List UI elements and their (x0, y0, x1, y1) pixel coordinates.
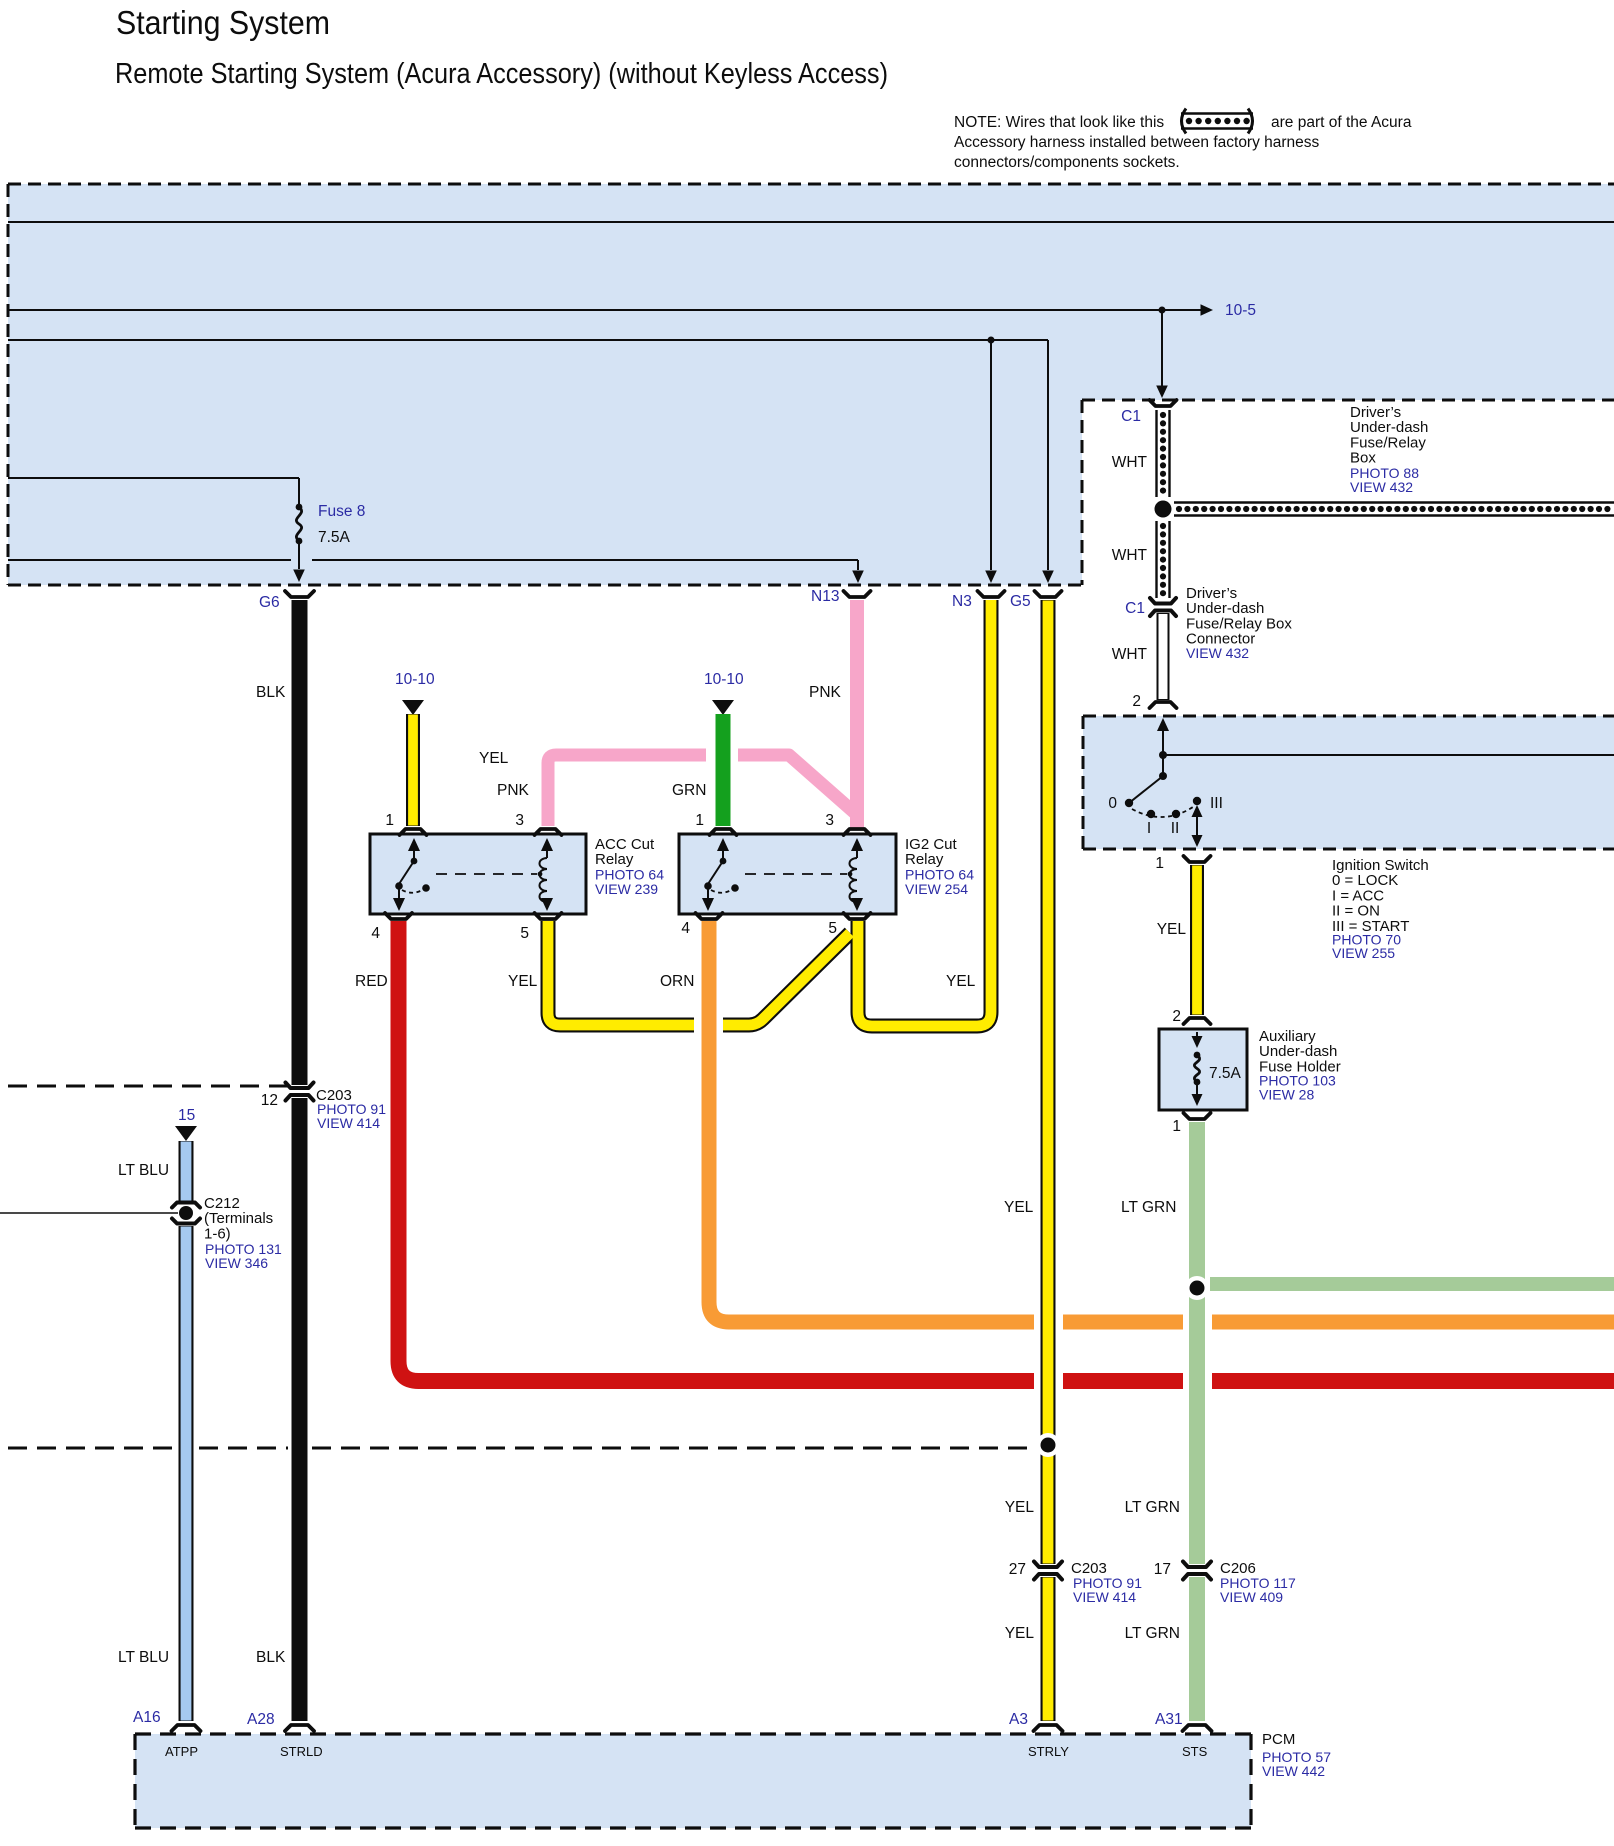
svg-text:VIEW 346: VIEW 346 (205, 1255, 268, 1271)
svg-text:1-6): 1-6) (204, 1225, 231, 1242)
svg-text:Fuse 8: Fuse 8 (318, 503, 365, 520)
svg-text:GRN: GRN (672, 782, 706, 799)
svg-text:YEL: YEL (946, 973, 976, 990)
svg-text:RED: RED (355, 973, 388, 990)
svg-text:Starting System: Starting System (116, 4, 330, 41)
svg-text:WHT: WHT (1112, 454, 1148, 471)
svg-text:C1: C1 (1121, 408, 1141, 425)
svg-text:A31: A31 (1155, 1711, 1183, 1728)
svg-text:VIEW 442: VIEW 442 (1262, 1763, 1325, 1779)
svg-text:VIEW 432: VIEW 432 (1350, 479, 1413, 495)
svg-text:7.5A: 7.5A (318, 529, 351, 546)
svg-text:VIEW 239: VIEW 239 (595, 881, 658, 897)
svg-text:5: 5 (520, 925, 529, 942)
svg-text:STS: STS (1182, 1744, 1208, 1759)
svg-text:12: 12 (261, 1092, 278, 1109)
svg-text:G5: G5 (1010, 593, 1031, 610)
svg-text:3: 3 (515, 812, 524, 829)
svg-text:NOTE: Wires that look like thi: NOTE: Wires that look like this (954, 114, 1164, 131)
svg-text:LT GRN: LT GRN (1125, 1625, 1180, 1642)
svg-text:Accessory harness installed be: Accessory harness installed between fact… (954, 134, 1320, 151)
svg-text:C1: C1 (1125, 600, 1145, 617)
svg-text:YEL: YEL (1004, 1199, 1034, 1216)
svg-text:1: 1 (1172, 1118, 1181, 1135)
svg-text:are part of the Acura: are part of the Acura (1271, 114, 1412, 131)
svg-text:10-10: 10-10 (704, 671, 744, 688)
svg-text:N13: N13 (811, 588, 839, 605)
svg-text:VIEW 255: VIEW 255 (1332, 945, 1395, 961)
svg-text:G6: G6 (259, 594, 280, 611)
svg-text:III: III (1210, 795, 1223, 812)
svg-text:ATPP: ATPP (165, 1744, 198, 1759)
svg-text:LT GRN: LT GRN (1121, 1199, 1176, 1216)
svg-text:STRLD: STRLD (280, 1744, 323, 1759)
svg-text:VIEW 414: VIEW 414 (1073, 1589, 1136, 1605)
svg-text:YEL: YEL (1005, 1625, 1035, 1642)
svg-text:VIEW 414: VIEW 414 (317, 1115, 380, 1131)
svg-text:YEL: YEL (1005, 1499, 1035, 1516)
svg-text:10-5: 10-5 (1225, 302, 1256, 319)
svg-text:BLK: BLK (256, 1649, 286, 1666)
svg-text:3: 3 (825, 812, 834, 829)
svg-text:A28: A28 (247, 1711, 275, 1728)
svg-text:WHT: WHT (1112, 646, 1148, 663)
svg-text:BLK: BLK (256, 684, 286, 701)
svg-text:7.5A: 7.5A (1209, 1065, 1242, 1082)
svg-text:A16: A16 (133, 1709, 161, 1726)
svg-text:LT BLU: LT BLU (118, 1162, 169, 1179)
svg-text:1: 1 (1155, 855, 1164, 872)
svg-text:2: 2 (1172, 1008, 1181, 1025)
svg-text:connectors/components sockets.: connectors/components sockets. (954, 154, 1180, 171)
svg-text:PCM: PCM (1262, 1731, 1295, 1748)
svg-text:N3: N3 (952, 593, 972, 610)
svg-text:Remote Starting System (Acura: Remote Starting System (Acura Accessory)… (115, 58, 888, 90)
svg-text:WHT: WHT (1112, 547, 1148, 564)
svg-text:A3: A3 (1009, 1711, 1028, 1728)
svg-text:YEL: YEL (508, 973, 538, 990)
svg-text:YEL: YEL (479, 750, 509, 767)
svg-text:1: 1 (385, 812, 394, 829)
svg-text:II: II (1171, 820, 1180, 837)
svg-text:15: 15 (178, 1107, 195, 1124)
svg-text:VIEW 28: VIEW 28 (1259, 1087, 1314, 1103)
svg-text:2: 2 (1132, 693, 1141, 710)
svg-text:LT GRN: LT GRN (1125, 1499, 1180, 1516)
svg-text:4: 4 (681, 920, 690, 937)
svg-text:PNK: PNK (497, 782, 530, 799)
svg-text:5: 5 (828, 920, 837, 937)
svg-text:PNK: PNK (809, 684, 842, 701)
svg-text:VIEW 432: VIEW 432 (1186, 645, 1249, 661)
svg-text:VIEW 409: VIEW 409 (1220, 1589, 1283, 1605)
svg-text:4: 4 (371, 925, 380, 942)
svg-text:I: I (1147, 820, 1151, 837)
svg-text:1: 1 (695, 812, 704, 829)
svg-text:VIEW 254: VIEW 254 (905, 881, 968, 897)
svg-text:LT BLU: LT BLU (118, 1649, 169, 1666)
svg-text:17: 17 (1154, 1561, 1171, 1578)
svg-text:10-10: 10-10 (395, 671, 435, 688)
svg-text:STRLY: STRLY (1028, 1744, 1069, 1759)
svg-text:YEL: YEL (1157, 921, 1187, 938)
svg-text:27: 27 (1009, 1561, 1026, 1578)
svg-text:0: 0 (1108, 795, 1117, 812)
svg-text:ORN: ORN (660, 973, 694, 990)
